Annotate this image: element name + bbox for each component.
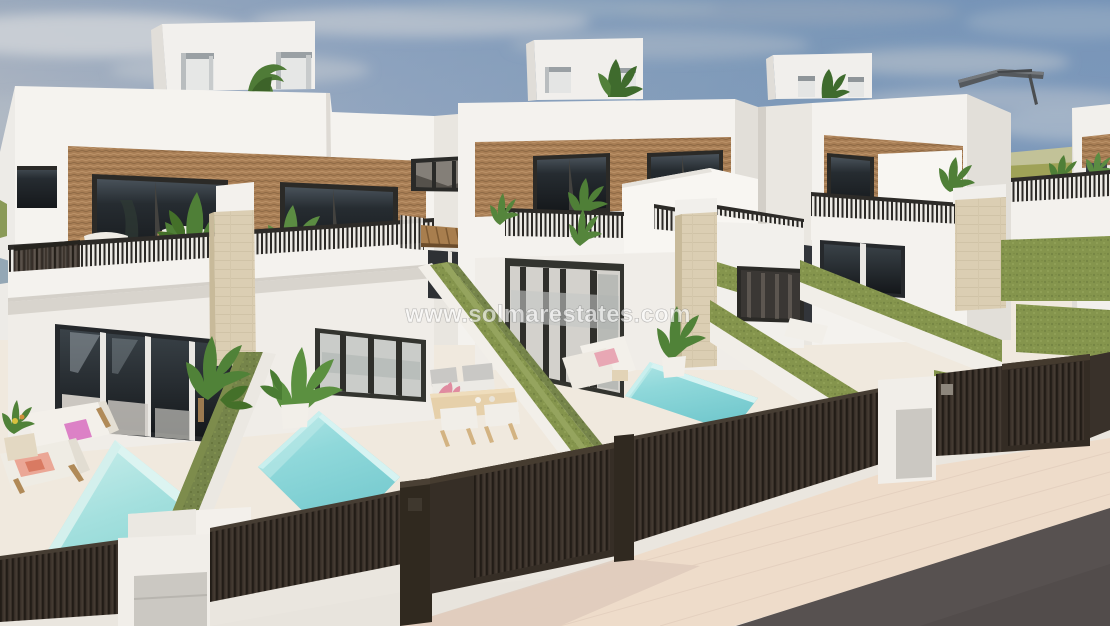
svg-text:www.solmarestates.com: www.solmarestates.com bbox=[404, 301, 691, 328]
